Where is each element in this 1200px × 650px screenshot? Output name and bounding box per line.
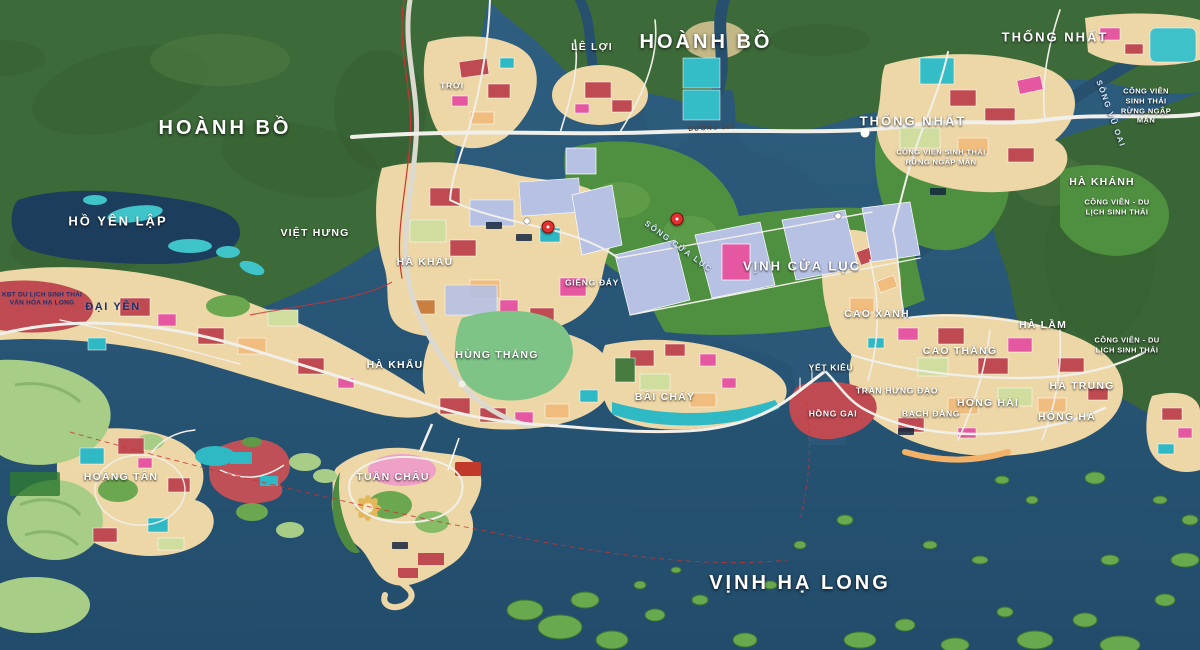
map-artwork — [0, 0, 1200, 650]
planning-map[interactable]: Quy hoạch Hạ Long - Hoành Bồ (planning m… — [0, 0, 1200, 650]
